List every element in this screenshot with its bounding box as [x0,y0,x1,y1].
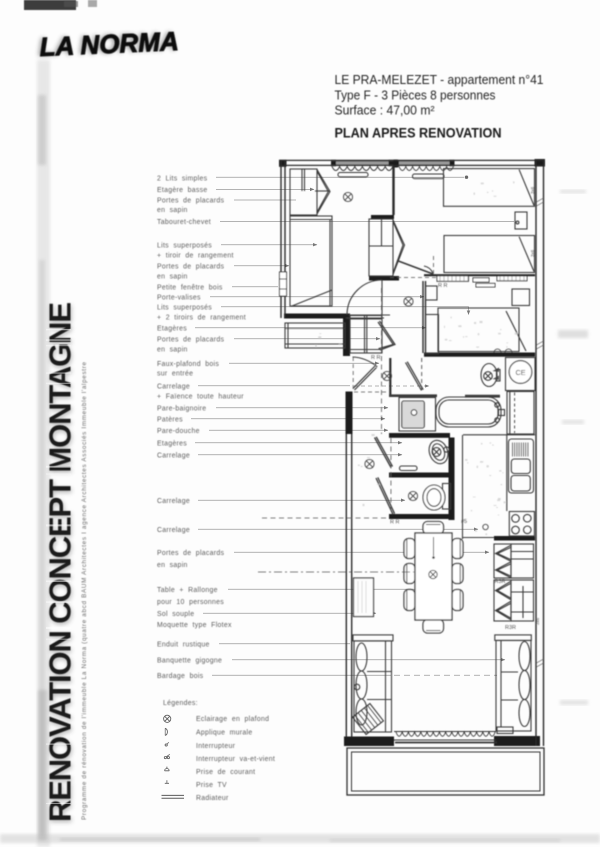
svg-text:Etagères: Etagères [157,441,187,448]
svg-text:CE: CE [516,368,526,377]
svg-text:Lits superposés: Lits superposés [157,305,212,312]
svg-text:R R: R R [371,355,381,361]
svg-text:R R: R R [438,283,448,289]
svg-text:Eclairage en plafond: Eclairage en plafond [196,716,269,723]
svg-text:Etagère basse: Etagère basse [157,187,208,194]
svg-text:2 Lits simples: 2 Lits simples [157,175,208,182]
svg-text:Faux-plafond bois: Faux-plafond bois [157,361,219,368]
svg-text:Radiateur: Radiateur [196,795,229,802]
svg-text:Pare-douche: Pare-douche [157,428,200,435]
svg-text:en sapin: en sapin [157,274,188,281]
svg-text:en sapin: en sapin [157,347,188,354]
svg-text:Programme de rénovation de l'i: Programme de rénovation de l'immeuble La… [81,362,88,820]
svg-text:en sapin: en sapin [157,562,188,569]
svg-text:Portes de placards: Portes de placards [157,264,225,271]
svg-text:Portes de placards: Portes de placards [157,198,225,205]
svg-text:Lits superposés: Lits superposés [157,243,212,250]
svg-text:R3R: R3R [495,579,506,585]
svg-text:Surface : 47,00 m²: Surface : 47,00 m² [335,103,436,118]
svg-text:+ Faïence toute hauteur: + Faïence toute hauteur [157,394,244,401]
svg-text:#5: #5 [461,519,467,525]
svg-text:Enduit rustique: Enduit rustique [157,642,210,649]
svg-text:Prise TV: Prise TV [196,782,227,789]
svg-text:Porte-valises: Porte-valises [157,295,201,302]
svg-text:Banquette gigogne: Banquette gigogne [157,658,222,665]
svg-text:LE PRA-MELEZET - appartement n: LE PRA-MELEZET - appartement n°41 [335,72,544,87]
svg-text:Etagères: Etagères [157,326,187,333]
svg-text:Applique murale: Applique murale [196,730,253,737]
svg-text:Pare-baignoire: Pare-baignoire [157,406,206,413]
svg-text:Patères: Patères [157,417,183,424]
svg-text:pour 10 personnes: pour 10 personnes [157,599,224,606]
svg-text:+ 2 tiroirs de rangement: + 2 tiroirs de rangement [157,315,246,322]
svg-text:3x6: 3x6 [530,186,535,194]
svg-text:Carrelage: Carrelage [157,527,190,534]
svg-text:Carrelage: Carrelage [157,498,190,505]
svg-text:Moquette type Flotex: Moquette type Flotex [157,622,232,629]
svg-text:Portes de placards: Portes de placards [157,550,225,557]
svg-text:Carrelage: Carrelage [157,384,190,391]
svg-text:R3R: R3R [505,625,516,631]
svg-text:3x6: 3x6 [530,249,535,257]
svg-text:PLAN APRES RENOVATION: PLAN APRES RENOVATION [335,126,502,141]
svg-text:+ tiroir de rangement: + tiroir de rangement [157,253,234,260]
svg-text:3x6: 3x6 [535,617,540,625]
svg-text:Interrupteur va-et-vient: Interrupteur va-et-vient [196,756,275,763]
svg-text:Petite fenêtre bois: Petite fenêtre bois [157,285,223,292]
svg-text:sur entrée: sur entrée [157,371,193,378]
svg-text:Interrupteur: Interrupteur [196,743,236,750]
svg-text:Sol souple: Sol souple [157,611,194,618]
svg-text:Tabouret-chevet: Tabouret-chevet [157,219,211,226]
svg-text:Type F - 3 Pièces 8 personnes: Type F - 3 Pièces 8 personnes [335,88,496,103]
svg-text:Bardage bois: Bardage bois [157,673,204,680]
svg-text:R R: R R [390,520,400,526]
svg-text:Légendes:: Légendes: [163,700,198,707]
svg-text:Table + Rallonge: Table + Rallonge [157,587,218,594]
svg-text:Prise de courant: Prise de courant [196,769,255,776]
svg-text:Portes de placards: Portes de placards [157,337,225,344]
svg-text:LA NORMA: LA NORMA [39,26,179,62]
svg-text:en sapin: en sapin [157,207,188,214]
svg-text:RENOVATION CONCEPT MONTAGNE: RENOVATION CONCEPT MONTAGNE [44,304,79,824]
svg-text:Carrelage: Carrelage [157,453,190,460]
